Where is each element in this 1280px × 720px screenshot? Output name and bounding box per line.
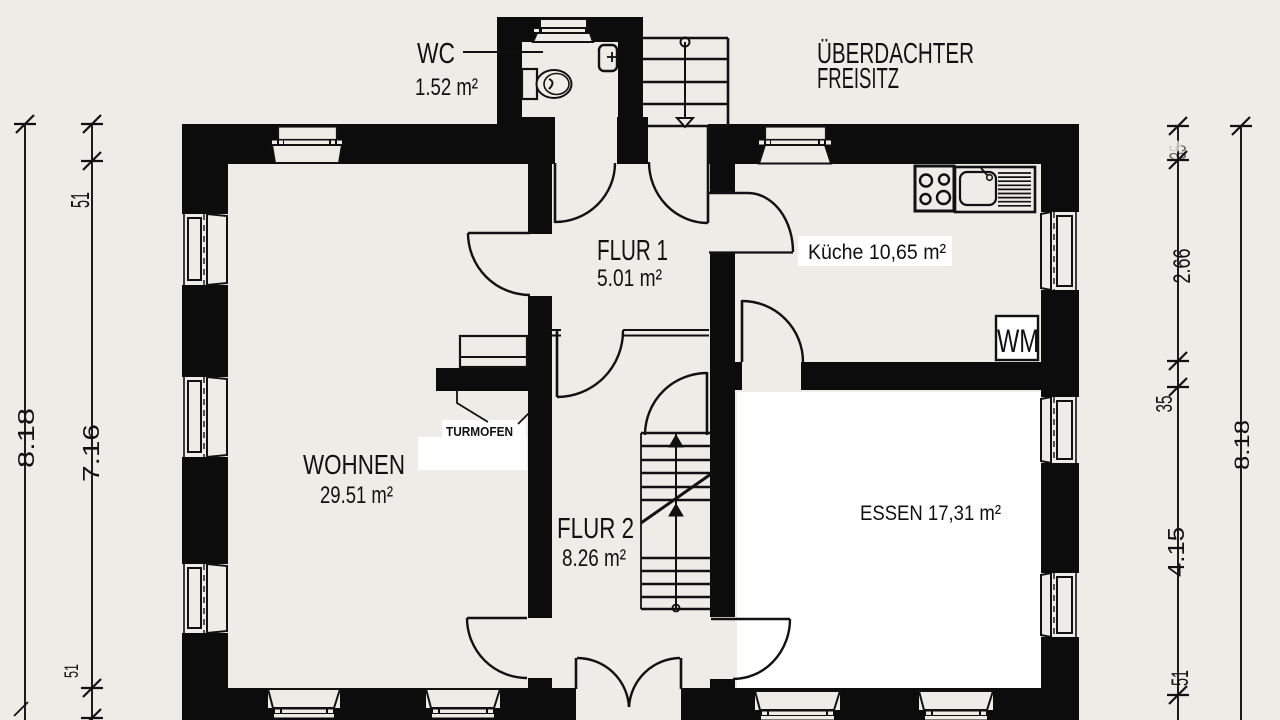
svg-text:WM: WM bbox=[997, 323, 1039, 359]
svg-text:FLUR 1: FLUR 1 bbox=[597, 235, 668, 267]
svg-text:ESSEN 17,31 m²: ESSEN 17,31 m² bbox=[860, 501, 1001, 525]
svg-text:35: 35 bbox=[1151, 396, 1177, 413]
svg-text:2.66: 2.66 bbox=[1169, 249, 1196, 284]
svg-text:FREISITZ: FREISITZ bbox=[817, 63, 899, 95]
svg-text:WC: WC bbox=[417, 38, 455, 70]
svg-text:TURMOFEN: TURMOFEN bbox=[446, 424, 513, 439]
svg-text:29.51 m²: 29.51 m² bbox=[320, 482, 393, 509]
svg-text:8.26 m²: 8.26 m² bbox=[562, 545, 626, 572]
svg-text:4.15: 4.15 bbox=[1163, 527, 1189, 577]
svg-text:FLUR 2: FLUR 2 bbox=[557, 513, 634, 545]
svg-text:51: 51 bbox=[1167, 670, 1194, 686]
svg-text:7.16: 7.16 bbox=[78, 424, 104, 482]
svg-text:8.18: 8.18 bbox=[1231, 420, 1254, 470]
svg-text:Küche 10,65 m²: Küche 10,65 m² bbox=[808, 240, 946, 264]
svg-text:5.01 m²: 5.01 m² bbox=[597, 265, 662, 292]
svg-text:8.18: 8.18 bbox=[13, 408, 39, 468]
svg-text:WOHNEN: WOHNEN bbox=[303, 449, 405, 480]
svg-text:1.52 m²: 1.52 m² bbox=[415, 74, 478, 101]
svg-text:51: 51 bbox=[65, 192, 95, 208]
svg-text:51: 51 bbox=[62, 664, 83, 678]
